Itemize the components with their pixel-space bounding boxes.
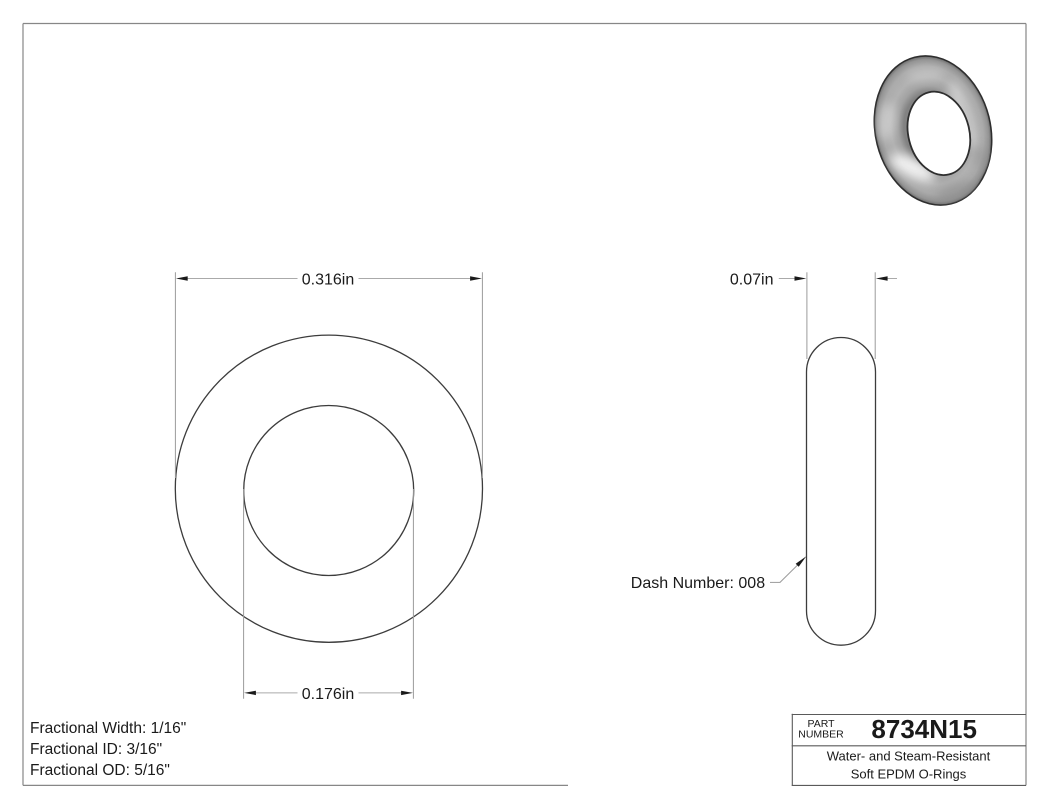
svg-text:0.316in: 0.316in (302, 272, 355, 289)
svg-text:Soft EPDM O-Rings: Soft EPDM O-Rings (851, 767, 967, 782)
svg-text:8734N15: 8734N15 (871, 714, 977, 744)
svg-text:NUMBER: NUMBER (798, 729, 844, 741)
svg-text:Dash Number: 008: Dash Number: 008 (631, 575, 765, 592)
svg-text:Fractional ID: 3/16": Fractional ID: 3/16" (30, 741, 162, 758)
svg-text:Fractional OD: 5/16": Fractional OD: 5/16" (30, 762, 170, 779)
svg-text:0.07in: 0.07in (730, 272, 774, 289)
svg-text:Fractional Width: 1/16": Fractional Width: 1/16" (30, 720, 186, 737)
svg-text:Water- and Steam-Resistant: Water- and Steam-Resistant (827, 749, 991, 764)
svg-text:0.176in: 0.176in (302, 686, 355, 703)
